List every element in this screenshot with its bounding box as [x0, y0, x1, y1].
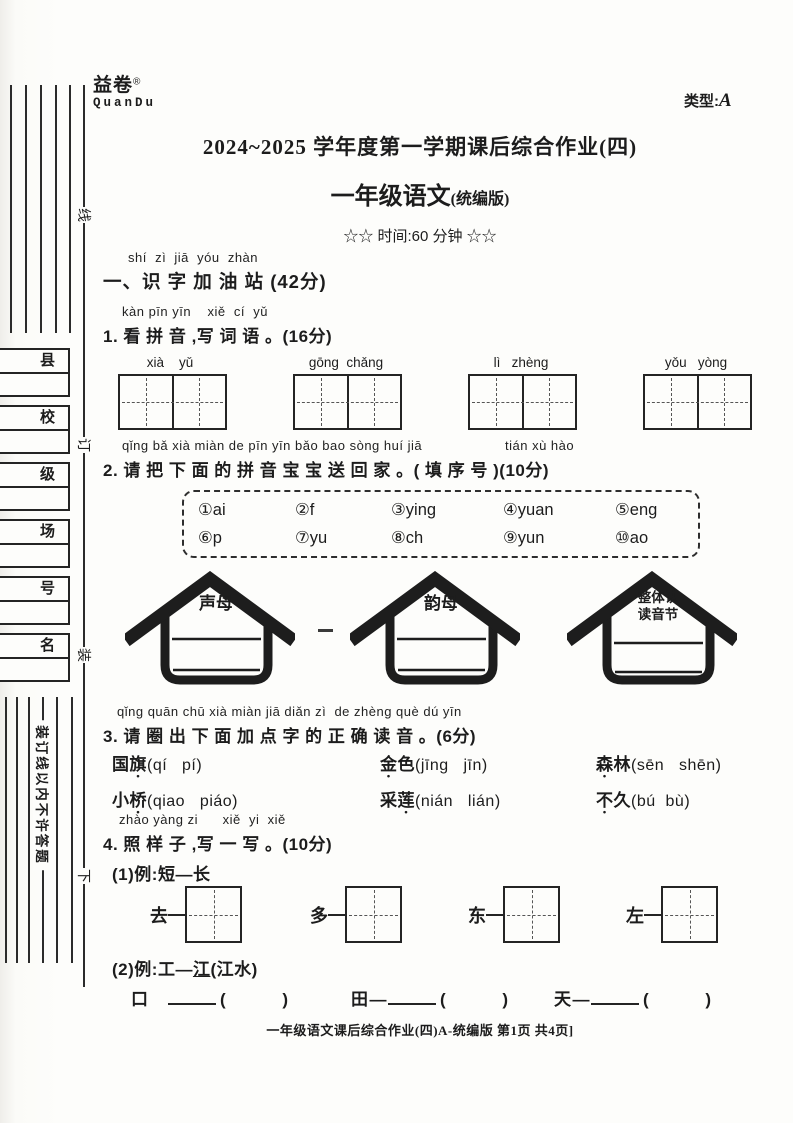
example-underlined: 江 — [193, 960, 211, 979]
field-label: 校 — [0, 407, 68, 431]
paper-subtitle: 一年级语文(统编版) — [90, 176, 750, 211]
word-pinyin-gongchang: gōng chǎng — [309, 355, 383, 370]
dotted-char: 不 — [596, 786, 614, 811]
pinyin-q2: qǐng bǎ xià miàn de pīn yīn bǎo bao sòng… — [122, 438, 422, 453]
dash-connector: — — [368, 990, 388, 1010]
prompt-char: 田 — [351, 985, 368, 1010]
dotted-char: 莲 — [398, 786, 416, 811]
q4-item-tian: 田—( ) — [351, 985, 508, 1010]
registered-mark-icon: ® — [133, 77, 140, 88]
writing-box-single[interactable] — [661, 886, 718, 943]
question-4-text: 4. 照 样 子 ,写 一 写 。(10分) — [103, 830, 332, 855]
writing-cell[interactable] — [172, 376, 226, 428]
word-pinyin-xiayu: xià yǔ — [147, 355, 194, 370]
word-part: 久 — [614, 791, 632, 810]
binding-char-zhuang: 装 — [74, 647, 94, 663]
binding-char-ding: 订 — [74, 437, 94, 453]
prompt-char: 左 — [626, 902, 644, 928]
pron-options[interactable]: (qí pí) — [147, 757, 202, 774]
answer-parens[interactable]: ( ) — [220, 990, 288, 1010]
stray-dash-mark — [318, 629, 333, 632]
field-box-school: 校 — [0, 405, 70, 454]
house-finals: 韵母 — [350, 571, 520, 695]
q3-item-senlin[interactable]: 森林(sēn shēn) — [596, 750, 721, 775]
dash-connector — [328, 914, 345, 916]
brand-logo-cn: 益卷 — [93, 75, 133, 96]
answer-parens[interactable]: ( ) — [440, 990, 508, 1010]
word-part: 采 — [380, 791, 398, 810]
option-7: ⑦yu — [295, 528, 391, 548]
prompt-char: 天 — [554, 985, 571, 1010]
dotted-char: 金 — [380, 750, 398, 775]
question-2-text: 2. 请 把 下 面 的 拼 音 宝 宝 送 回 家 。( 填 序 号 )(10… — [103, 456, 549, 481]
page-footer: 一年级语文课后综合作业(四)A-统编版 第1页 共4页] — [100, 1020, 740, 1039]
q4-item-qu: 去 — [150, 886, 242, 943]
q4-item-zuo: 左 — [626, 886, 718, 943]
writing-box-single[interactable] — [345, 886, 402, 943]
dash-connector: — — [571, 990, 591, 1010]
margin-line — [25, 85, 27, 333]
house-initials: 声母 — [125, 571, 295, 695]
answer-blank[interactable] — [168, 989, 216, 1005]
dotted-char: 桥 — [130, 786, 148, 811]
field-box-class: 级 — [0, 462, 70, 511]
house-whole-syllables: 整体认 读音节 — [567, 571, 737, 695]
field-box-room: 场 — [0, 519, 70, 568]
q4-item-tian2: 天—( ) — [554, 985, 711, 1010]
writing-cell[interactable] — [645, 376, 697, 428]
margin-line — [71, 697, 73, 963]
word-pinyin-lizheng: lì zhèng — [494, 355, 549, 370]
question-3-text: 3. 请 圈 出 下 面 加 点 字 的 正 确 读 音 。(6分) — [103, 722, 476, 747]
subject-grade: 一年级语文 — [331, 184, 451, 210]
writing-box-single[interactable] — [503, 886, 560, 943]
pron-options[interactable]: (qiao piáo) — [147, 793, 238, 810]
margin-line — [69, 85, 71, 333]
margin-line — [10, 85, 12, 333]
q4-part1-example: (1)例:短—长 — [112, 860, 210, 885]
word-pinyin-youyong: yǒu yòng — [665, 355, 727, 370]
pinyin-q3: qǐng quān chū xià miàn jiā diǎn zì de zh… — [117, 704, 462, 719]
writing-cell[interactable] — [347, 376, 401, 428]
option-5: ⑤eng — [615, 500, 698, 520]
option-8: ⑧ch — [391, 528, 503, 548]
example-pre: (2)例:工— — [112, 960, 193, 979]
field-box-county: 县 — [0, 348, 70, 397]
field-blank[interactable] — [0, 659, 68, 680]
option-3: ③ying — [391, 500, 503, 520]
writing-box[interactable] — [643, 374, 752, 430]
answer-blank[interactable] — [388, 989, 436, 1005]
field-box-name: 名 — [0, 633, 70, 682]
prompt-char: 东 — [468, 902, 486, 928]
q4-item-dong: 东 — [468, 886, 560, 943]
dotted-char: 森 — [596, 750, 614, 775]
word-part: 色 — [398, 755, 416, 774]
writing-cell[interactable] — [697, 376, 751, 428]
q3-item-guoqi[interactable]: 国旗(qí pí) — [112, 750, 202, 775]
q4-part2-example: (2)例:工—江(江水) — [112, 955, 258, 980]
word-part: 林 — [614, 755, 632, 774]
pinyin-q1: kàn pīn yīn xiě cí yǔ — [122, 304, 268, 319]
writing-box[interactable] — [293, 374, 402, 430]
pron-options[interactable]: (sēn shēn) — [631, 757, 721, 774]
field-blank[interactable] — [0, 488, 68, 509]
brand-logo: 益卷® QuanDu — [93, 76, 156, 111]
example-post: (江水) — [210, 960, 257, 979]
field-blank[interactable] — [0, 374, 68, 395]
margin-line — [28, 697, 30, 963]
dotted-char: 旗 — [130, 750, 148, 775]
field-blank[interactable] — [0, 602, 68, 623]
dash-connector — [644, 914, 661, 916]
section1-heading: 一、识 字 加 油 站 (42分) — [103, 268, 327, 294]
field-label: 名 — [0, 635, 68, 659]
worksheet-page: 线 订 装 下 装订线以内不许答题 县 校 级 场 号 名 — [0, 0, 793, 1123]
writing-cell[interactable] — [120, 376, 172, 428]
prompt-char: 多 — [310, 902, 328, 928]
time-limit: ☆☆ 时间:60 分钟 ☆☆ — [90, 225, 750, 246]
q4-item-kou: 口( ) — [131, 985, 288, 1010]
field-label: 号 — [0, 578, 68, 602]
house-label-line2: 读音节 — [638, 606, 679, 622]
brand-logo-en: QuanDu — [93, 97, 156, 111]
paper-type-label: 类型: — [684, 93, 719, 110]
field-label: 场 — [0, 521, 68, 545]
q3-item-cailian[interactable]: 采莲(nián lián) — [380, 786, 501, 811]
pinyin-section1: shí zì jiā yóu zhàn — [128, 250, 258, 265]
writing-box[interactable] — [468, 374, 577, 430]
field-box-number: 号 — [0, 576, 70, 625]
pron-options[interactable]: (bú bù) — [631, 793, 690, 810]
q3-item-bujiu[interactable]: 不久(bú bù) — [596, 786, 690, 811]
question-1-text: 1. 看 拼 音 ,写 词 语 。(16分) — [103, 322, 332, 347]
margin-line — [55, 85, 57, 333]
option-9: ⑨yun — [503, 528, 615, 548]
field-label: 级 — [0, 464, 68, 488]
margin-line — [5, 697, 7, 963]
field-label: 县 — [0, 350, 68, 374]
prompt-char: 口 — [131, 985, 148, 1010]
writing-cell[interactable] — [522, 376, 576, 428]
margin-line — [40, 85, 42, 333]
option-2: ②f — [295, 500, 391, 520]
field-blank[interactable] — [0, 431, 68, 452]
q3-item-jinse[interactable]: 金色(jīng jīn) — [380, 750, 488, 775]
option-4: ④yuan — [503, 500, 615, 520]
pinyin-q2-tail: tián xù hào — [505, 438, 574, 453]
edition: (统编版) — [451, 191, 510, 208]
dash-connector — [168, 914, 185, 916]
q4-item-duo: 多 — [310, 886, 402, 943]
writing-cell[interactable] — [470, 376, 522, 428]
q3-item-xiaoqiao[interactable]: 小桥(qiao piáo) — [112, 786, 238, 811]
answer-blank[interactable] — [591, 989, 639, 1005]
paper-type-value: A — [719, 90, 732, 111]
pinyin-options-box: ①ai ②f ③ying ④yuan ⑤eng ⑥p ⑦yu ⑧ch ⑨yun … — [182, 490, 700, 558]
field-blank[interactable] — [0, 545, 68, 566]
option-6: ⑥p — [198, 528, 295, 548]
paper-type: 类型:A — [684, 90, 732, 112]
no-answer-zone-text: 装订线以内不许答题 — [33, 720, 53, 870]
house-label: 韵母 — [424, 593, 458, 613]
binding-char-xia: 下 — [74, 868, 94, 884]
house-label-line1: 整体认 — [638, 589, 679, 605]
house-label: 声母 — [198, 593, 233, 613]
pron-options[interactable]: (jīng jīn) — [415, 757, 488, 774]
writing-cell[interactable] — [295, 376, 347, 428]
pron-options[interactable]: (nián lián) — [415, 793, 501, 810]
option-1: ①ai — [198, 500, 295, 520]
writing-box-single[interactable] — [185, 886, 242, 943]
writing-box[interactable] — [118, 374, 227, 430]
word-part: 国 — [112, 755, 130, 774]
word-part: 小 — [112, 791, 130, 810]
option-10: ⑩ao — [615, 528, 698, 548]
pinyin-q4: zhào yàng zi xiě yi xiě — [119, 812, 286, 827]
answer-parens[interactable]: ( ) — [643, 990, 711, 1010]
house-body — [607, 613, 710, 680]
prompt-char: 去 — [150, 902, 168, 928]
margin-line — [56, 697, 58, 963]
margin-line — [16, 697, 18, 963]
dash-connector — [486, 914, 503, 916]
paper-title: 2024~2025 学年度第一学期课后综合作业(四) — [90, 131, 750, 161]
